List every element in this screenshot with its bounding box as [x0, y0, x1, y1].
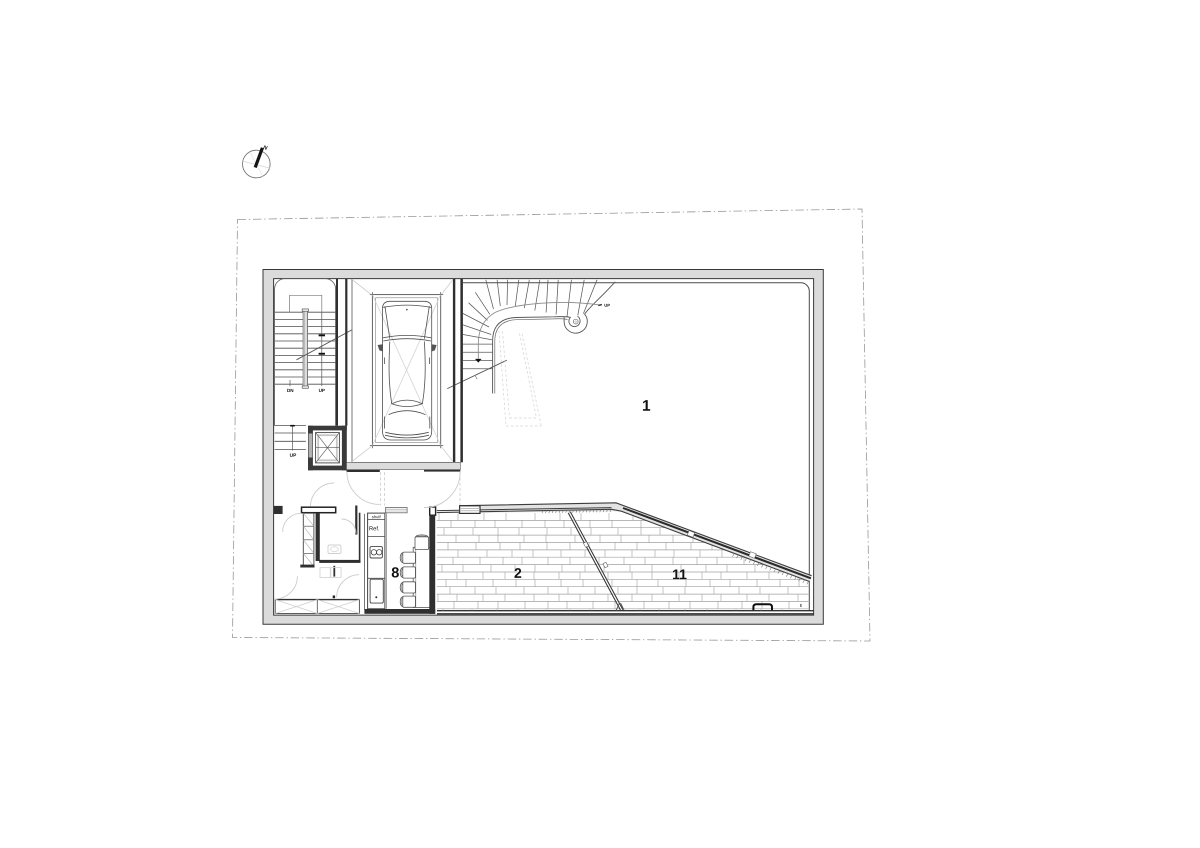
svg-text:1: 1: [642, 398, 651, 415]
svg-text:11: 11: [672, 566, 687, 582]
svg-text:UP: UP: [319, 388, 325, 393]
svg-text:2: 2: [514, 565, 522, 581]
svg-text:UP: UP: [604, 303, 610, 308]
svg-text:8: 8: [391, 565, 399, 581]
svg-text:Ref.: Ref.: [369, 526, 380, 532]
svg-text:UP: UP: [290, 453, 297, 459]
svg-text:DN: DN: [287, 388, 294, 393]
svg-text:shelf: shelf: [372, 514, 382, 519]
